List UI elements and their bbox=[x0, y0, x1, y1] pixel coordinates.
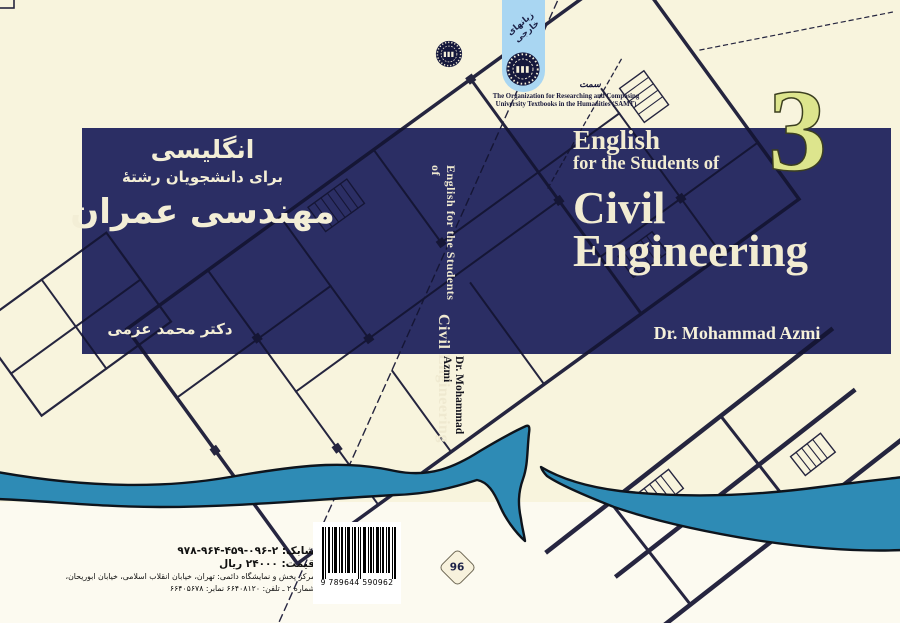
org-line-2: University Textbooks in the Humanities (… bbox=[446, 101, 686, 109]
address-line-1: مرکز پخش و نمایشگاه دائمی: تهران، خیابان… bbox=[40, 571, 315, 582]
back-cover-author: دکتر محمد عزمی bbox=[95, 320, 245, 338]
front-title-main-2: Engineering bbox=[573, 230, 808, 273]
front-title-sub: for the Students of bbox=[573, 154, 808, 175]
isbn-line: شابک: ۲-۰۹۶-۴۵۹-۹۶۴-۹۷۸ bbox=[40, 545, 315, 558]
back-title-line3: مهندسی عمران bbox=[70, 192, 335, 232]
back-title-line2: برای دانشجویان رشتهٔ bbox=[70, 168, 335, 186]
samt-emblem-icon bbox=[434, 39, 464, 69]
publisher-signature: سمت bbox=[560, 80, 620, 90]
back-cover-title: انگلیسی برای دانشجویان رشتهٔ مهندسی عمرا… bbox=[70, 136, 335, 232]
barcode bbox=[313, 522, 401, 604]
org-line-1: The Organization for Researching and Com… bbox=[446, 93, 686, 101]
spine-author: Dr. Mohammad Azmi bbox=[441, 356, 465, 461]
series-badge-value: 96 bbox=[450, 562, 465, 574]
back-title-line1: انگلیسی bbox=[70, 136, 335, 164]
samt-emblem-icon bbox=[504, 50, 542, 88]
front-title-top: English bbox=[573, 127, 808, 154]
publisher-organization-text: The Organization for Researching and Com… bbox=[446, 93, 686, 110]
ean13-barcode-icon bbox=[313, 522, 401, 604]
book-cover: زبانهای خارجی سمت The Organization for R… bbox=[0, 0, 900, 623]
price-line: قیمت: ۲۴۰۰۰ ریال bbox=[40, 558, 315, 571]
barcode-digits: 9 789644 590962 bbox=[314, 578, 400, 587]
address-line-2: شماره ۲ ـ تلفن: ۶۶۴۰۸۱۲۰ نمابر: ۶۶۴۰۵۶۷۸ bbox=[40, 583, 315, 594]
front-title-main-1: Civil bbox=[573, 187, 808, 230]
front-cover-author: Dr. Mohammad Azmi bbox=[612, 323, 862, 344]
colophon-block: شابک: ۲-۰۹۶-۴۵۹-۹۶۴-۹۷۸ قیمت: ۲۴۰۰۰ ریال… bbox=[40, 545, 315, 594]
front-cover-title: English for the Students of Civil Engine… bbox=[573, 127, 808, 273]
spine-title-small: English for the Students of bbox=[428, 165, 458, 308]
